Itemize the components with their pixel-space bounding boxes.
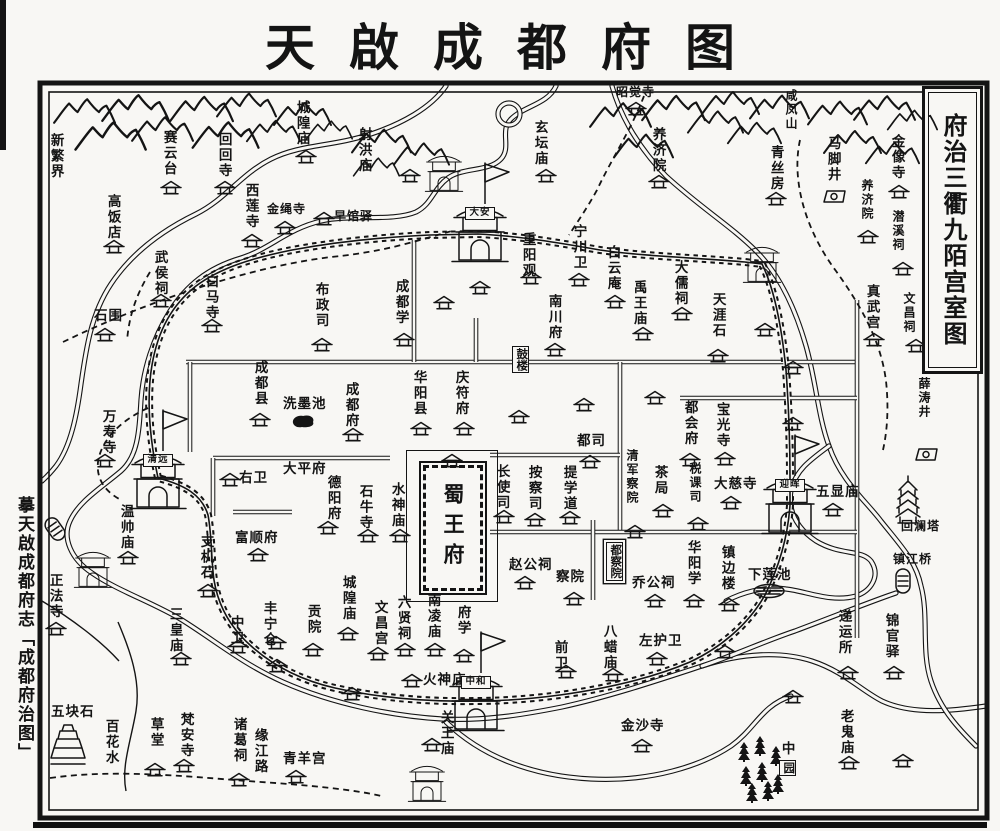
bridgeicon-icon — [896, 569, 910, 593]
hall-icon — [95, 455, 115, 467]
hall-icon — [368, 648, 388, 660]
hall-icon — [625, 526, 645, 538]
bridgeicon-icon — [42, 515, 67, 543]
hall-icon — [454, 423, 474, 435]
peaks-icon — [307, 121, 353, 139]
hall-icon — [893, 263, 913, 275]
hall-icon — [286, 771, 306, 783]
flag-icon — [481, 632, 505, 673]
hall-icon — [104, 241, 124, 253]
peaks-icon — [274, 103, 331, 125]
peaks-icon — [54, 99, 115, 122]
hall-icon — [202, 320, 222, 332]
hall-icon — [422, 739, 442, 751]
blob-icon — [293, 415, 314, 427]
pine-icon — [740, 766, 752, 786]
flag-icon — [485, 163, 509, 204]
hall-icon — [536, 170, 556, 182]
hall-icon — [684, 595, 704, 607]
scan-edge-left — [0, 0, 6, 150]
legend-title: 府治三衢九陌宫室图 — [935, 113, 970, 347]
hall-icon — [884, 667, 904, 679]
hall-icon — [312, 339, 332, 351]
hall-icon — [318, 522, 338, 534]
scan-edge-bottom — [33, 822, 987, 828]
hall-icon — [889, 186, 909, 198]
hall-icon — [823, 504, 843, 516]
hall-icon — [151, 295, 171, 307]
pine-icon — [756, 762, 768, 782]
peaks-icon — [728, 123, 781, 144]
hall-icon — [645, 595, 665, 607]
hall-icon — [680, 454, 700, 466]
peaks-icon — [824, 131, 881, 153]
hall-icon — [580, 456, 600, 468]
flag-icon — [163, 410, 187, 451]
hall-icon — [647, 653, 667, 665]
well-icon — [824, 191, 845, 202]
hall-icon — [605, 296, 625, 308]
hall-icon — [242, 235, 262, 247]
hall-icon — [564, 593, 584, 605]
hall-icon — [394, 334, 414, 346]
hall-icon — [521, 272, 541, 284]
hall-icon — [653, 505, 673, 517]
hall-icon — [358, 530, 378, 542]
hall-icon — [171, 653, 191, 665]
hall-icon — [783, 691, 803, 703]
hall-icon — [95, 329, 115, 341]
hall-icon — [556, 666, 576, 678]
hall-icon — [229, 774, 249, 786]
hall-icon — [470, 282, 490, 294]
hall-icon — [118, 552, 138, 564]
hall-icon — [400, 170, 420, 182]
pine-icon — [772, 774, 784, 794]
hall-icon — [545, 344, 565, 356]
pine-icon — [738, 742, 750, 762]
hall-icon — [338, 628, 358, 640]
hall-icon — [839, 757, 859, 769]
hall-icon — [893, 755, 913, 767]
hall-icon — [672, 308, 692, 320]
hall-icon — [560, 512, 580, 524]
peaks-icon — [354, 158, 400, 176]
pagoda-icon — [896, 476, 920, 523]
pine-icon — [762, 781, 774, 801]
palace-wall: 蜀王府 — [419, 461, 487, 595]
hall-icon — [645, 392, 665, 404]
pine-icon — [770, 746, 782, 766]
hall-icon — [632, 740, 652, 752]
hall-icon — [174, 760, 194, 772]
hall-icon — [161, 182, 181, 194]
peaks-icon — [193, 122, 259, 147]
hall-icon — [303, 644, 323, 656]
peaks-icon — [866, 143, 919, 164]
stones-icon — [51, 725, 85, 764]
roads — [50, 96, 887, 796]
hall-icon — [715, 453, 735, 465]
hall-icon — [509, 411, 529, 423]
hall-icon — [515, 577, 535, 589]
palace-name: 蜀王府 — [421, 463, 485, 593]
hall-icon — [343, 429, 363, 441]
hall-icon — [688, 518, 708, 530]
hall-icon — [296, 151, 316, 163]
hall-icon — [574, 399, 594, 411]
hall-icon — [858, 231, 878, 243]
peaks-icon — [688, 111, 743, 132]
peaks-icon — [394, 143, 449, 164]
hall-icon — [434, 297, 454, 309]
well-icon — [916, 449, 937, 460]
hall-icon — [395, 644, 415, 656]
hall-icon — [220, 474, 240, 486]
peaks-icon — [642, 96, 705, 120]
hall-icon — [454, 650, 474, 662]
hall-icon — [569, 274, 589, 286]
hall-icon — [248, 549, 268, 561]
map-canvas — [0, 0, 1000, 831]
hall-icon — [250, 414, 270, 426]
pine-icon — [754, 736, 766, 756]
hall-icon — [603, 669, 623, 681]
hall-icon — [525, 514, 545, 526]
peaks-icon — [352, 130, 411, 153]
hall-icon — [755, 324, 775, 336]
hall-icon — [411, 423, 431, 435]
icon-layer — [42, 92, 937, 803]
hall-icon — [721, 497, 741, 509]
peaks-icon — [702, 92, 759, 114]
peaks-icon — [217, 94, 276, 117]
hall-icon — [266, 637, 286, 649]
gate-icon — [408, 766, 445, 801]
hall-icon — [425, 644, 445, 656]
hall-icon — [633, 328, 653, 340]
pine-icon — [746, 783, 758, 803]
legend-title-box: 府治三衢九陌宫室图 — [922, 86, 983, 374]
map-page: 天啟成都府图 摹天啟成都府志「成都府治图」 — [0, 0, 1000, 831]
hall-icon — [402, 675, 422, 687]
hall-icon — [766, 193, 786, 205]
